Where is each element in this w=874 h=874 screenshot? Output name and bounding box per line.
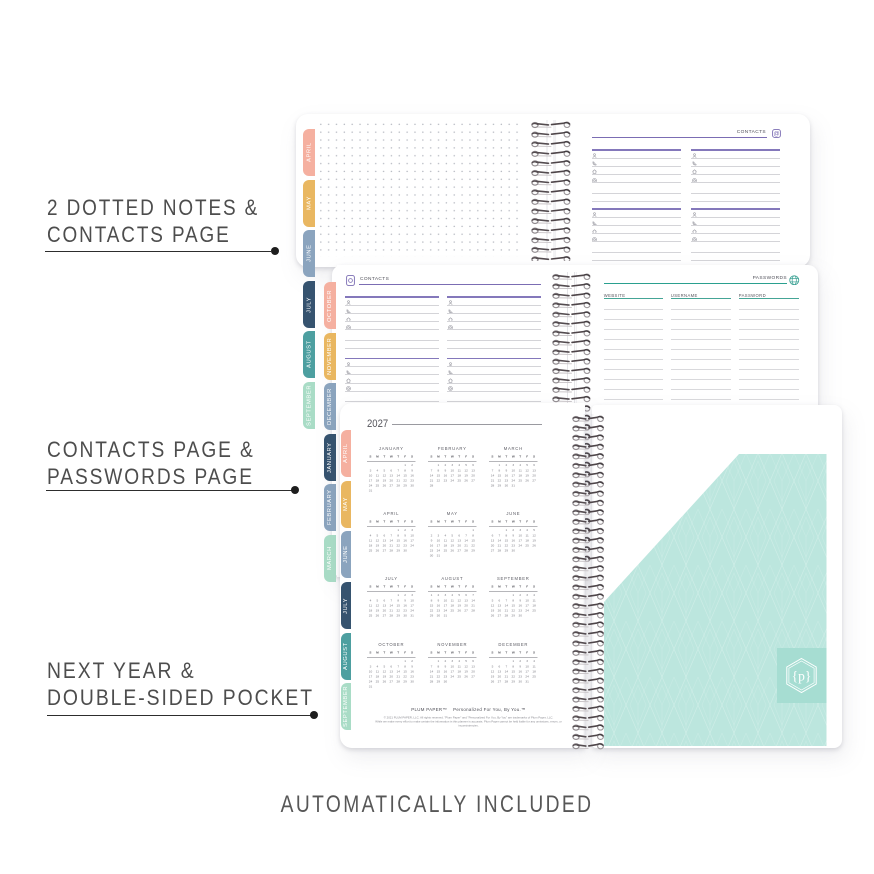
svg-text:{p}: {p} xyxy=(792,669,812,684)
svg-text:@: @ xyxy=(773,132,779,138)
